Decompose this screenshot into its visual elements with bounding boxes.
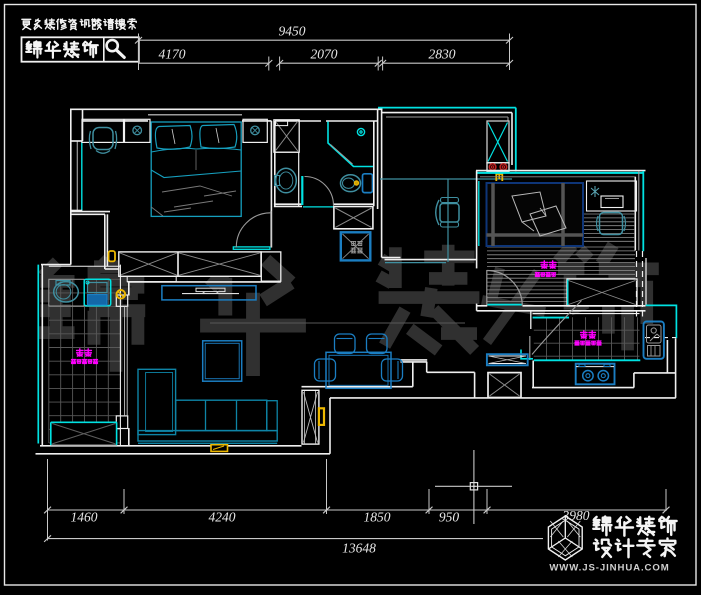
svg-text:13648: 13648: [342, 541, 376, 556]
svg-text:4240: 4240: [209, 510, 236, 525]
svg-text:9450: 9450: [279, 24, 306, 39]
svg-text:2070: 2070: [311, 46, 338, 61]
svg-text:4170: 4170: [159, 46, 186, 61]
svg-text:950: 950: [439, 510, 460, 525]
svg-text:1850: 1850: [364, 510, 391, 525]
svg-text:2830: 2830: [429, 46, 456, 61]
svg-text:1460: 1460: [71, 510, 98, 525]
svg-text:WWW.JS-JINHUA.COM: WWW.JS-JINHUA.COM: [549, 563, 669, 574]
